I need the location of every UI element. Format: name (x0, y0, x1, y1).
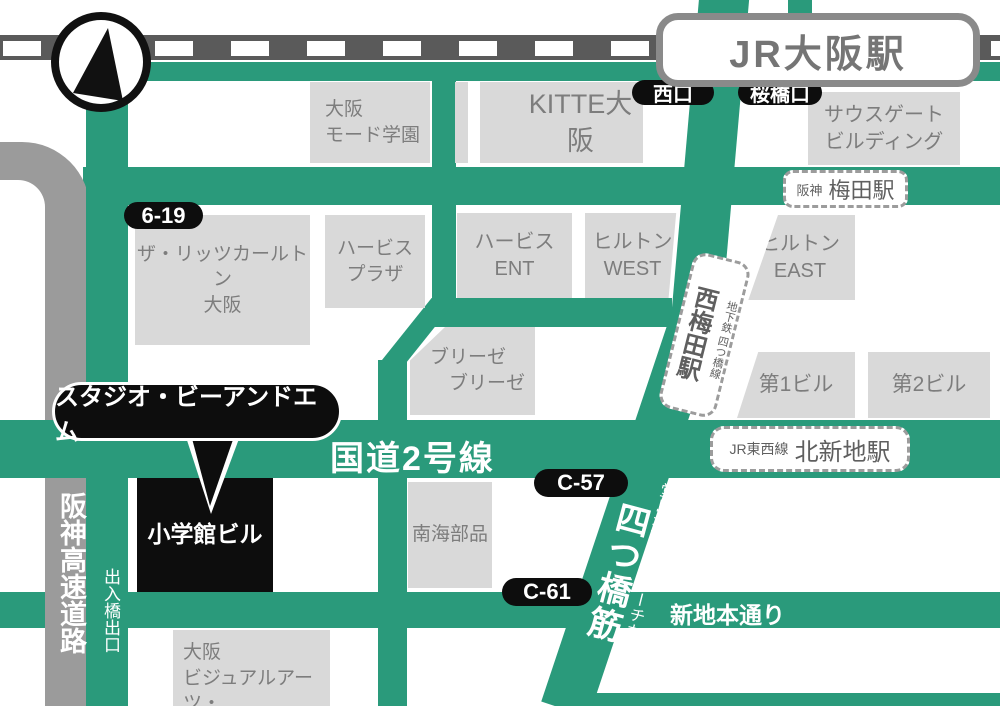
building-herbis-ent: ハービス ENT (457, 213, 572, 298)
railway-dash (3, 41, 41, 56)
badge-exit-6-19: 6-19 (124, 202, 203, 229)
umeda-station-label: 梅田駅 (829, 173, 895, 205)
building-ritz-carlton: ザ・リッツカールトン 大阪 (135, 215, 310, 345)
studio-b-and-m-callout: スタジオ・ビーアンドエム (52, 382, 342, 441)
building-herbis-plaza: ハービス プラザ (325, 215, 425, 308)
north-compass-icon (46, 7, 156, 117)
railway-dash (459, 41, 497, 56)
callout-label: スタジオ・ビーアンドエム (55, 377, 339, 447)
kitashinchi-station-label: 北新地駅 (795, 432, 891, 467)
road-label-hanshin-expressway: 阪神高速道路 (52, 492, 91, 654)
railway-dash (231, 41, 269, 56)
building-dai1-building: 第1ビル (737, 352, 855, 418)
railway-dash (155, 41, 193, 56)
building-hilton-west: ヒルトン WEST (585, 213, 680, 298)
hanshin-line-label: 阪神 (796, 180, 822, 199)
railway-dash (991, 41, 1000, 56)
building-breeze-breeze: ブリーゼ ブリーゼ (410, 327, 535, 415)
road-vertical-center-upper (432, 62, 456, 298)
building-southgate: サウスゲート ビルディング (808, 92, 960, 165)
building-kitte-annex (455, 82, 468, 163)
hanshin-umeda-station: 阪神 梅田駅 (783, 170, 908, 208)
railway-dash (307, 41, 345, 56)
building-visual-arts-academy: 大阪 ビジュアルアーツ・ アカデミー (173, 630, 330, 706)
jr-osaka-station: JR大阪駅 (656, 13, 980, 87)
road-shinchi-hondori-band (0, 592, 1000, 628)
kitashinchi-station: JR東西線 北新地駅 (710, 426, 910, 472)
building-hilton-east: ヒルトン EAST (745, 215, 855, 300)
road-third-horizontal (432, 298, 672, 327)
road-label-deiribashi-exit: 出入橋出口 (98, 568, 123, 653)
railway-dash (611, 41, 649, 56)
jr-osaka-station-label: JR大阪駅 (729, 23, 907, 78)
building-kitte-osaka: KITTE大阪 (480, 82, 643, 163)
railway-dash (535, 41, 573, 56)
badge-c61: C-61 (502, 578, 592, 606)
building-dai2-building: 第2ビル (868, 352, 990, 418)
badge-c57: C-57 (534, 469, 628, 497)
road-vertical-center-lower (378, 360, 407, 706)
road-bottom-horizontal (560, 693, 1000, 706)
building-nankai-buhin: 南海部品 (408, 482, 492, 588)
railway-dash (383, 41, 421, 56)
road-label-route2: 国道2号線 (330, 431, 495, 480)
osaka-access-map: 国道2号線 新地本通り 四つ橋筋 堂島地下街（ドーチカ） 阪神高速道路 出入橋出… (0, 0, 1000, 706)
road-label-shinchi-hondori: 新地本通り (670, 596, 785, 630)
jr-tozai-line-label: JR東西線 (729, 439, 788, 459)
building-osaka-mode-gakuen: 大阪 モード学園 (310, 82, 430, 163)
